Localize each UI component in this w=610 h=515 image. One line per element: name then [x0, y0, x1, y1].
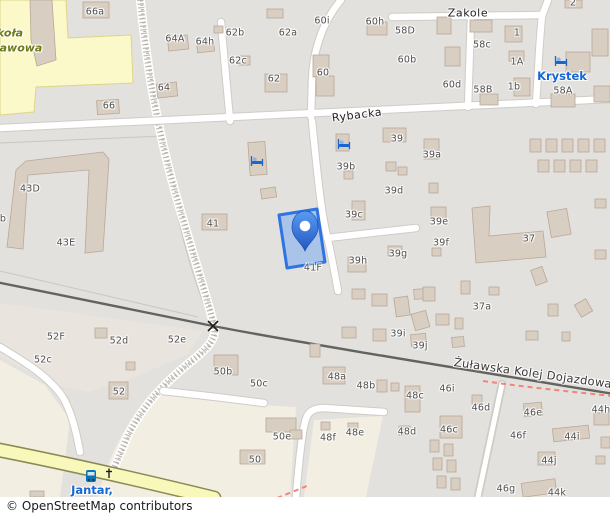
building — [383, 128, 406, 142]
osm-attribution-link[interactable]: © OpenStreetMap contributors — [6, 499, 192, 513]
building — [399, 426, 410, 435]
building — [562, 332, 570, 341]
building — [551, 94, 575, 107]
building — [388, 246, 402, 256]
building — [267, 9, 283, 18]
building — [367, 22, 387, 35]
building — [437, 476, 446, 488]
building — [342, 327, 356, 338]
building — [310, 344, 320, 357]
building — [156, 82, 177, 98]
building — [554, 160, 565, 172]
building — [391, 383, 399, 391]
building — [451, 478, 460, 490]
building — [447, 460, 456, 472]
building — [594, 139, 605, 152]
building — [352, 289, 365, 299]
building — [505, 26, 522, 42]
building — [214, 26, 223, 33]
building — [290, 430, 302, 439]
building — [595, 250, 606, 259]
building — [202, 214, 227, 230]
building — [440, 416, 462, 438]
building — [348, 423, 358, 432]
building — [526, 331, 538, 340]
building — [248, 141, 267, 175]
building — [423, 287, 435, 301]
building — [260, 187, 276, 199]
building — [316, 76, 334, 96]
building — [489, 287, 499, 295]
building — [344, 171, 353, 179]
building — [196, 39, 214, 53]
building — [214, 355, 238, 375]
building — [509, 51, 524, 61]
building — [565, 0, 582, 8]
building — [566, 52, 590, 72]
building — [265, 74, 287, 92]
building — [95, 328, 107, 338]
building — [546, 139, 557, 152]
building — [398, 167, 407, 175]
building — [405, 386, 420, 412]
building — [424, 139, 439, 159]
building — [394, 296, 411, 317]
building — [431, 207, 446, 220]
building — [436, 314, 449, 325]
building — [578, 139, 589, 152]
building — [386, 162, 396, 171]
building — [538, 452, 555, 465]
building — [437, 17, 451, 34]
building — [594, 413, 609, 425]
building — [548, 304, 558, 316]
building — [452, 336, 465, 347]
building — [538, 160, 549, 172]
building — [430, 440, 439, 452]
building — [562, 139, 573, 152]
building — [472, 395, 482, 404]
building — [239, 56, 250, 65]
map-window: 66a64A64h62b62a62c62646660i60h58D58c11A1… — [0, 0, 610, 515]
building — [429, 183, 438, 193]
building — [461, 281, 470, 294]
building — [352, 201, 365, 220]
building — [596, 456, 605, 464]
building — [455, 318, 463, 329]
building — [444, 444, 453, 456]
building — [445, 47, 460, 66]
map-tiles — [0, 0, 610, 497]
building — [480, 94, 498, 105]
building — [586, 160, 597, 172]
building — [523, 402, 542, 417]
building — [373, 329, 386, 341]
building — [592, 29, 608, 56]
building — [83, 2, 109, 18]
building — [570, 160, 581, 172]
building — [530, 139, 541, 152]
building — [313, 55, 329, 77]
building — [97, 99, 120, 115]
building — [514, 78, 530, 96]
map-canvas[interactable]: 66a64A64h62b62a62c62646660i60h58D58c11A1… — [0, 0, 610, 497]
building — [411, 333, 427, 346]
building — [595, 199, 606, 208]
building — [167, 35, 188, 51]
building — [321, 422, 330, 430]
attribution-bar: © OpenStreetMap contributors — [0, 497, 610, 515]
building — [432, 248, 441, 256]
building — [240, 450, 265, 464]
building — [372, 294, 387, 306]
building — [109, 382, 128, 399]
building — [601, 437, 610, 448]
building — [323, 367, 345, 384]
bus-stop-icon — [86, 470, 96, 482]
building — [126, 362, 135, 370]
building — [433, 458, 442, 470]
building — [348, 257, 366, 272]
building — [377, 380, 387, 392]
building — [470, 20, 492, 32]
building — [547, 208, 571, 237]
building — [594, 86, 610, 102]
